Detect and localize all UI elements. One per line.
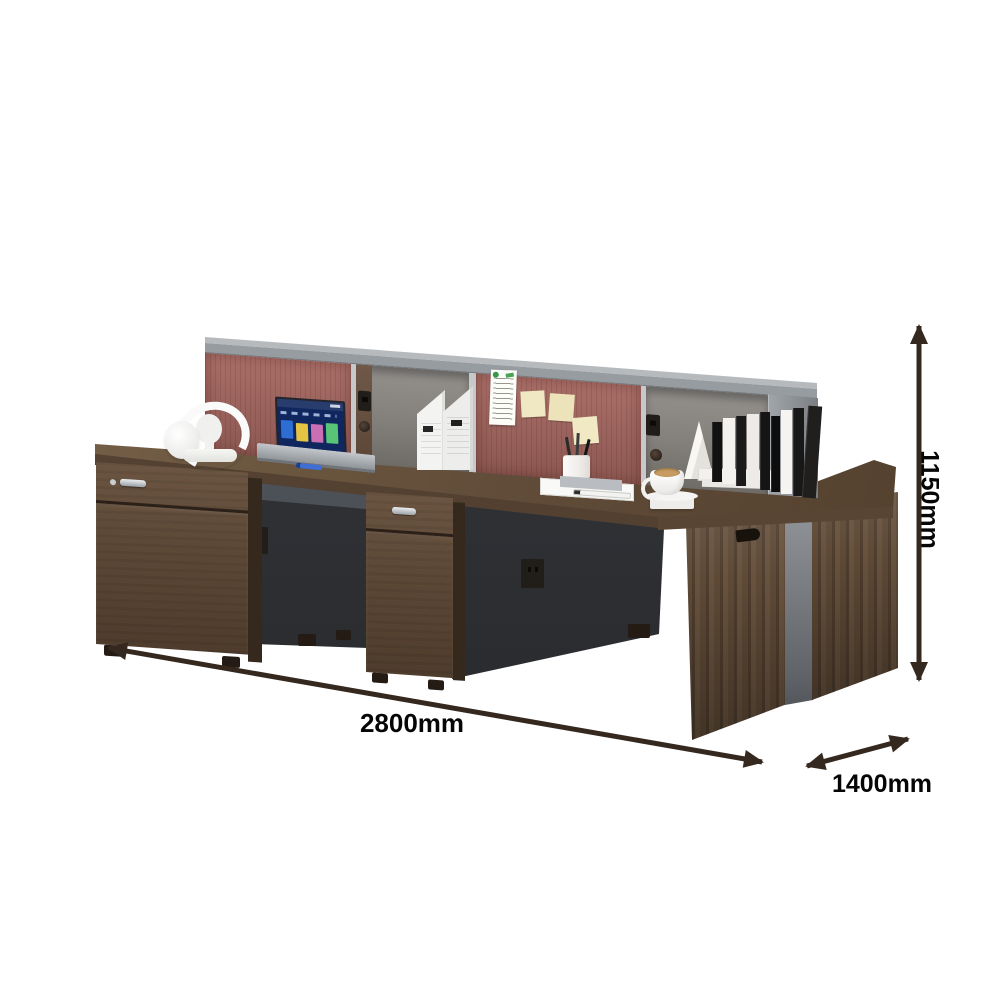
depth-dimension-arrow [807, 739, 908, 766]
product-dimension-diagram: 2800mm 1400mm 1150mm [0, 0, 1000, 1000]
width-dimension-label: 2800mm [332, 708, 492, 739]
depth-dimension-label: 1400mm [812, 770, 952, 799]
width-dimension-arrow [109, 648, 762, 762]
dimension-arrows [0, 0, 1000, 1000]
height-dimension-label: 1150mm [915, 445, 944, 555]
